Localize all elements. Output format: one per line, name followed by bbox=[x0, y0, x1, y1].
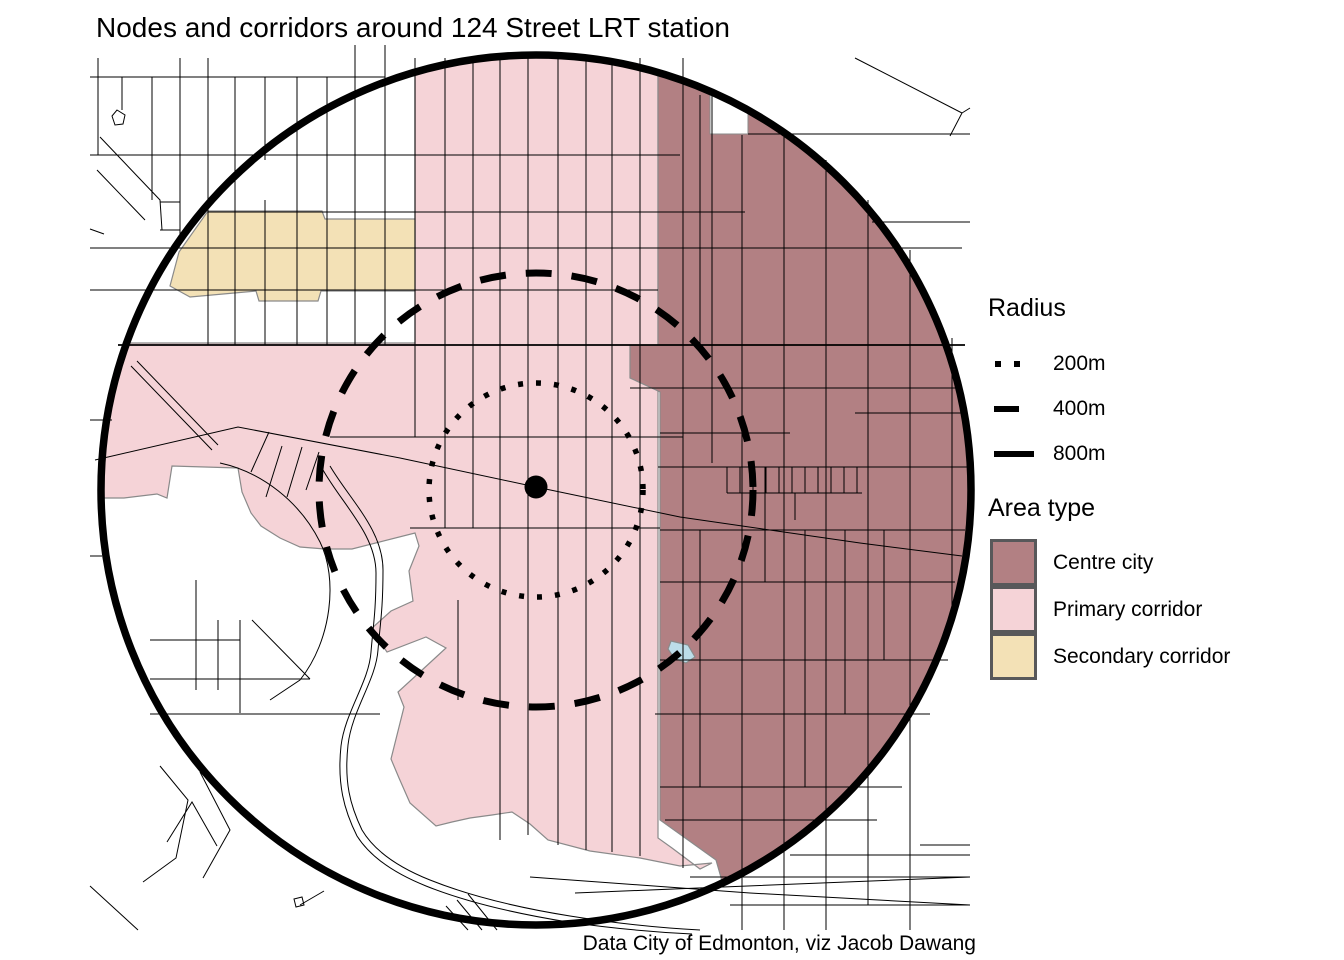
legend-area-type-title: Area type bbox=[988, 494, 1095, 522]
map-canvas bbox=[0, 0, 1344, 960]
legend-item-secondary-corridor: Secondary corridor bbox=[990, 633, 1230, 680]
legend-item-400m: 400m bbox=[992, 397, 1106, 421]
legend-label-400m: 400m bbox=[1053, 397, 1106, 421]
legend-label-200m: 200m bbox=[1053, 352, 1106, 376]
legend-label-secondary-corridor: Secondary corridor bbox=[1053, 645, 1230, 669]
area-layer bbox=[88, 45, 985, 881]
legend-item-200m: 200m bbox=[992, 352, 1106, 376]
legend-radius: Radius bbox=[988, 294, 1066, 322]
solid-line-icon bbox=[992, 449, 1036, 459]
legend-radius-title: Radius bbox=[988, 294, 1066, 322]
legend-swatch-primary-corridor bbox=[990, 586, 1037, 633]
data-attribution-caption: Data City of Edmonton, viz Jacob Dawang bbox=[583, 932, 976, 956]
legend-label-primary-corridor: Primary corridor bbox=[1053, 598, 1202, 622]
legend-label-centre-city: Centre city bbox=[1053, 551, 1153, 575]
legend-item-centre-city: Centre city bbox=[990, 539, 1153, 586]
legend-area-type: Area type bbox=[988, 494, 1095, 522]
legend-swatch-secondary-corridor bbox=[990, 633, 1037, 680]
legend-label-800m: 800m bbox=[1053, 442, 1106, 466]
legend-item-800m: 800m bbox=[992, 442, 1106, 466]
dashed-line-icon bbox=[992, 404, 1036, 414]
dotted-line-icon bbox=[992, 359, 1036, 369]
area-secondary-corridor bbox=[170, 211, 415, 301]
legend-swatch-centre-city bbox=[990, 539, 1037, 586]
legend-item-primary-corridor: Primary corridor bbox=[990, 586, 1202, 633]
station-marker bbox=[525, 476, 548, 499]
